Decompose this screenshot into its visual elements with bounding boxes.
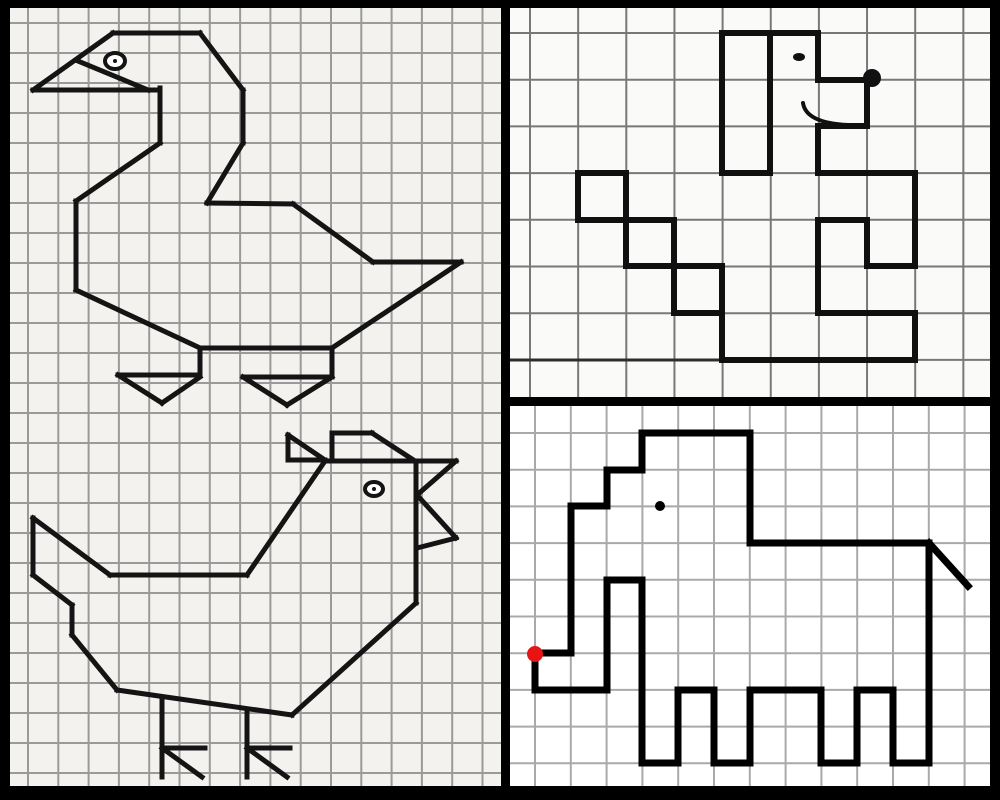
dog-nose (863, 69, 881, 87)
start-dot (527, 646, 543, 662)
drawing-svg (0, 0, 1000, 800)
goose-and-chicken-panel-background (10, 8, 501, 786)
dog-panel (510, 8, 990, 397)
border-top (0, 0, 1000, 8)
border-left (0, 0, 10, 800)
graph-paper-animal-collage (0, 0, 1000, 800)
elephant-eye (655, 501, 665, 511)
border-bottom (0, 786, 1000, 800)
goose-and-chicken-panel (10, 8, 501, 786)
elephant-panel (510, 406, 990, 786)
divider-horizontal (501, 397, 1000, 406)
dog-eye (793, 53, 805, 61)
